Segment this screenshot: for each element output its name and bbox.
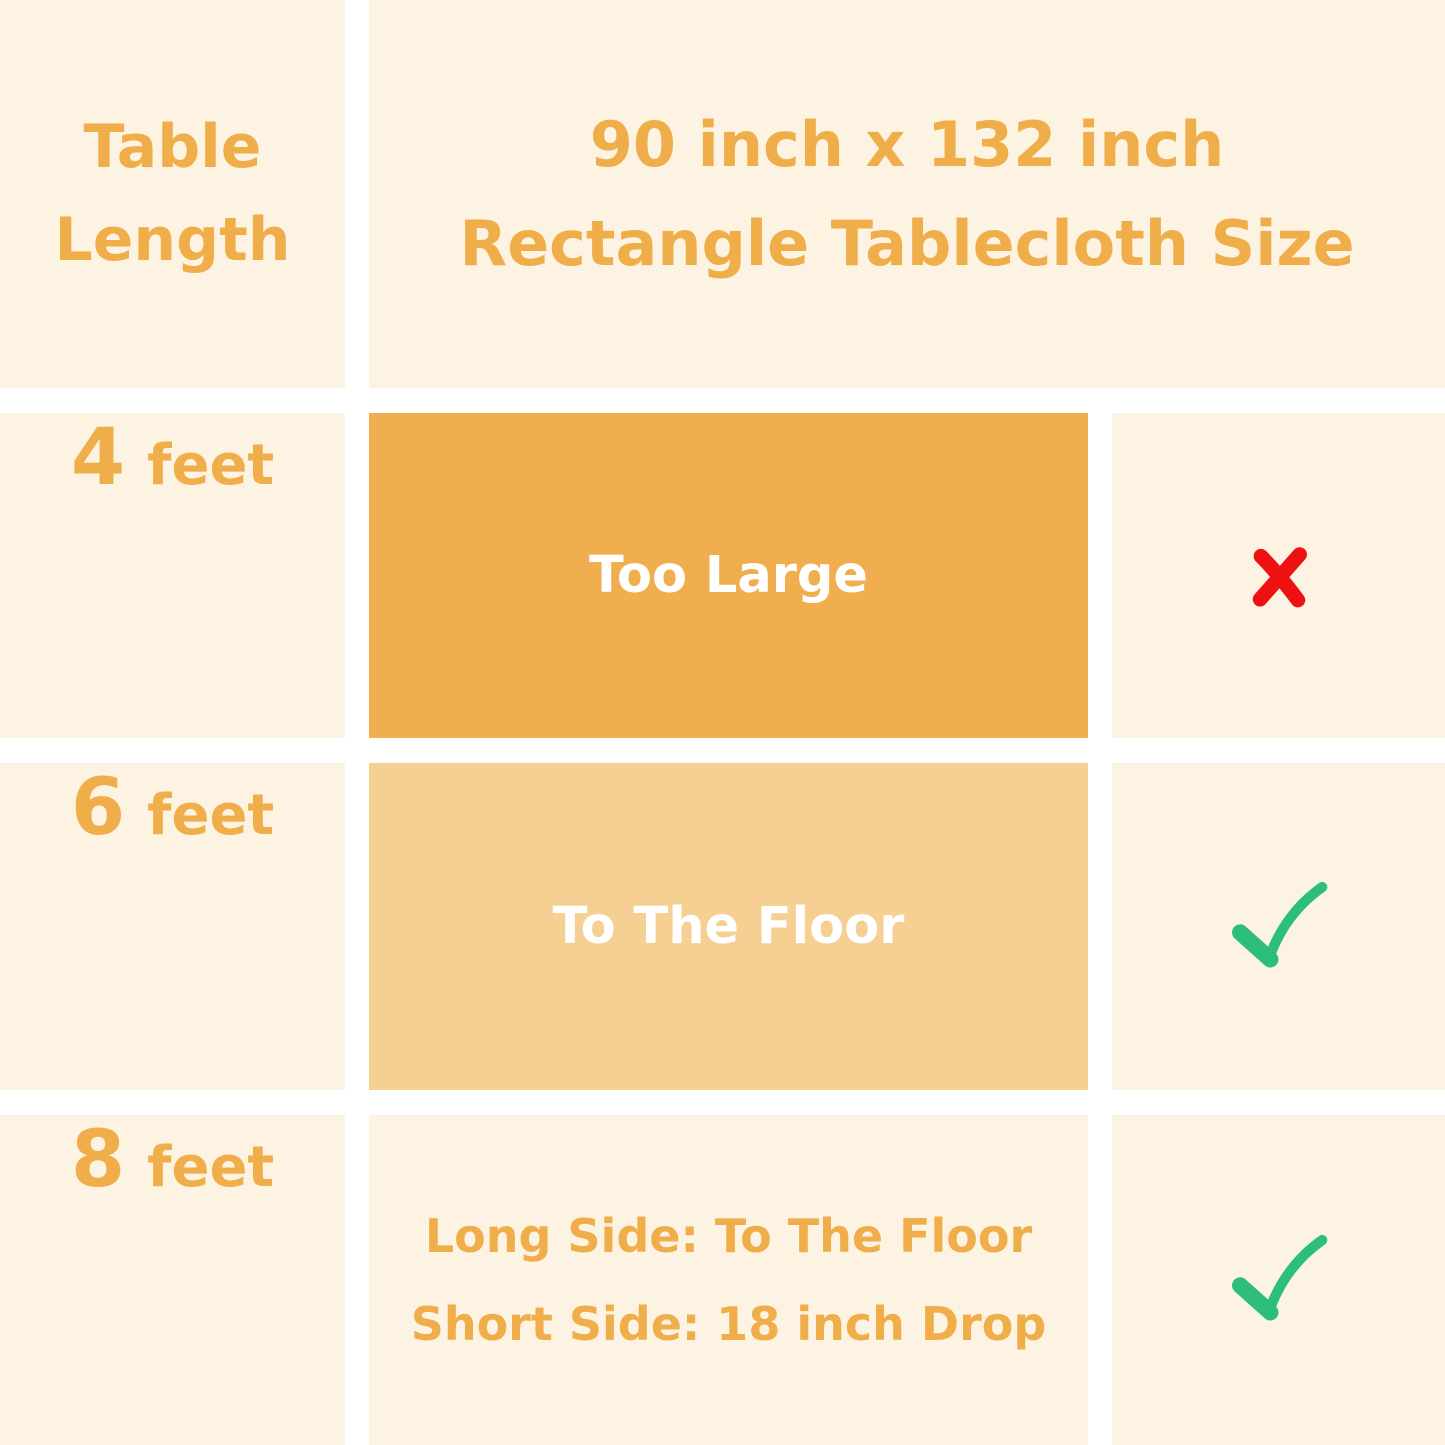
length-unit: feet — [147, 433, 274, 498]
fit-label: Too Large — [589, 546, 868, 605]
header-table-length-line1: Table — [84, 101, 262, 194]
length-number: 6 — [71, 763, 125, 853]
check-icon — [1225, 1226, 1333, 1334]
length-number: 4 — [71, 413, 125, 503]
cross-icon — [1236, 533, 1322, 619]
fit-cell-8-feet: Long Side: To The Floor Short Side: 18 i… — [369, 1115, 1088, 1445]
fit-cell-6-feet: To The Floor — [369, 763, 1088, 1090]
length-unit: feet — [147, 783, 274, 848]
length-cell-6-feet: 6 feet — [0, 763, 345, 1090]
fit-label-two-lines: Long Side: To The Floor Short Side: 18 i… — [411, 1213, 1047, 1347]
fit-cell-4-feet: Too Large — [369, 413, 1088, 738]
verdict-cell-6-feet — [1112, 763, 1445, 1090]
header-size-line1: 90 inch x 132 inch — [590, 95, 1225, 194]
length-number: 8 — [71, 1115, 125, 1205]
header-table-length: Table Length — [0, 0, 345, 388]
check-icon — [1225, 873, 1333, 981]
fit-line-long-side: Long Side: To The Floor — [411, 1213, 1047, 1259]
length-cell-8-feet: 8 feet — [0, 1115, 345, 1445]
fit-line-short-side: Short Side: 18 inch Drop — [411, 1301, 1047, 1347]
header-size-line2: Rectangle Tablecloth Size — [459, 194, 1354, 293]
verdict-cell-8-feet — [1112, 1115, 1445, 1445]
tablecloth-size-chart: Table Length 90 inch x 132 inch Rectangl… — [0, 0, 1445, 1445]
length-cell-4-feet: 4 feet — [0, 413, 345, 738]
length-unit: feet — [147, 1135, 274, 1200]
fit-label: To The Floor — [553, 897, 905, 956]
verdict-cell-4-feet — [1112, 413, 1445, 738]
header-tablecloth-size: 90 inch x 132 inch Rectangle Tablecloth … — [369, 0, 1445, 388]
header-table-length-line2: Length — [55, 194, 291, 287]
